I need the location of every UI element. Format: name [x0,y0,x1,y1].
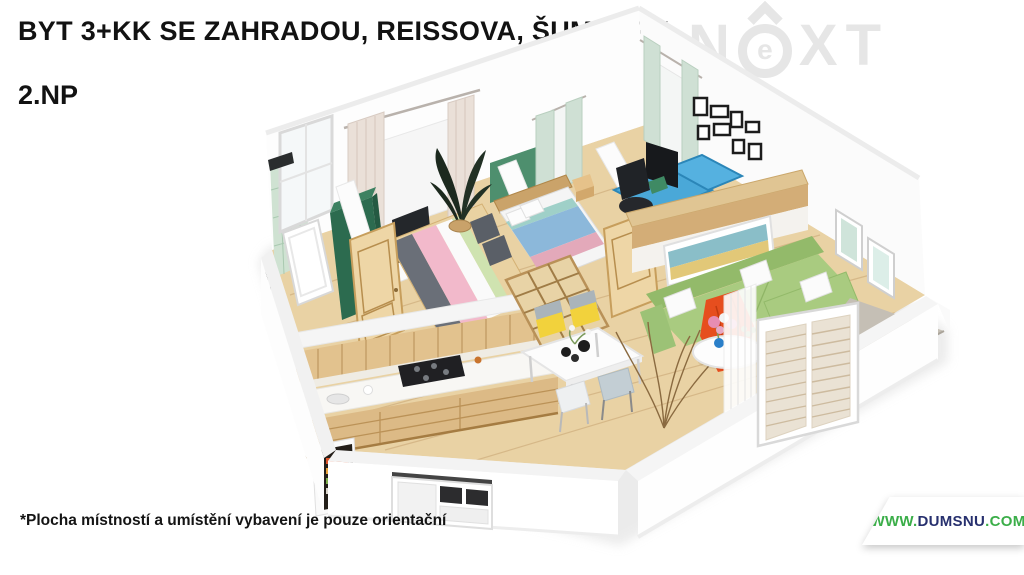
badge-domain: DUMSNU [918,513,986,530]
badge-www: WWW. [870,513,917,530]
apartment-3d-render [0,0,1024,575]
disclaimer-footnote: *Plocha místností a umístění vybavení je… [20,512,446,530]
website-badge: WWW.DUMSNU.COM [862,497,1024,545]
slide: BYT 3+KK SE ZAHRADOU, REISSOVA, ŠUMPERK … [0,0,1024,575]
badge-tld: .COM [985,513,1024,530]
sink [327,394,349,404]
bowl [364,386,373,395]
french-window-blinds [758,303,858,446]
bathroom-window [280,116,332,232]
jar [475,357,482,364]
blue-vase [714,338,724,348]
